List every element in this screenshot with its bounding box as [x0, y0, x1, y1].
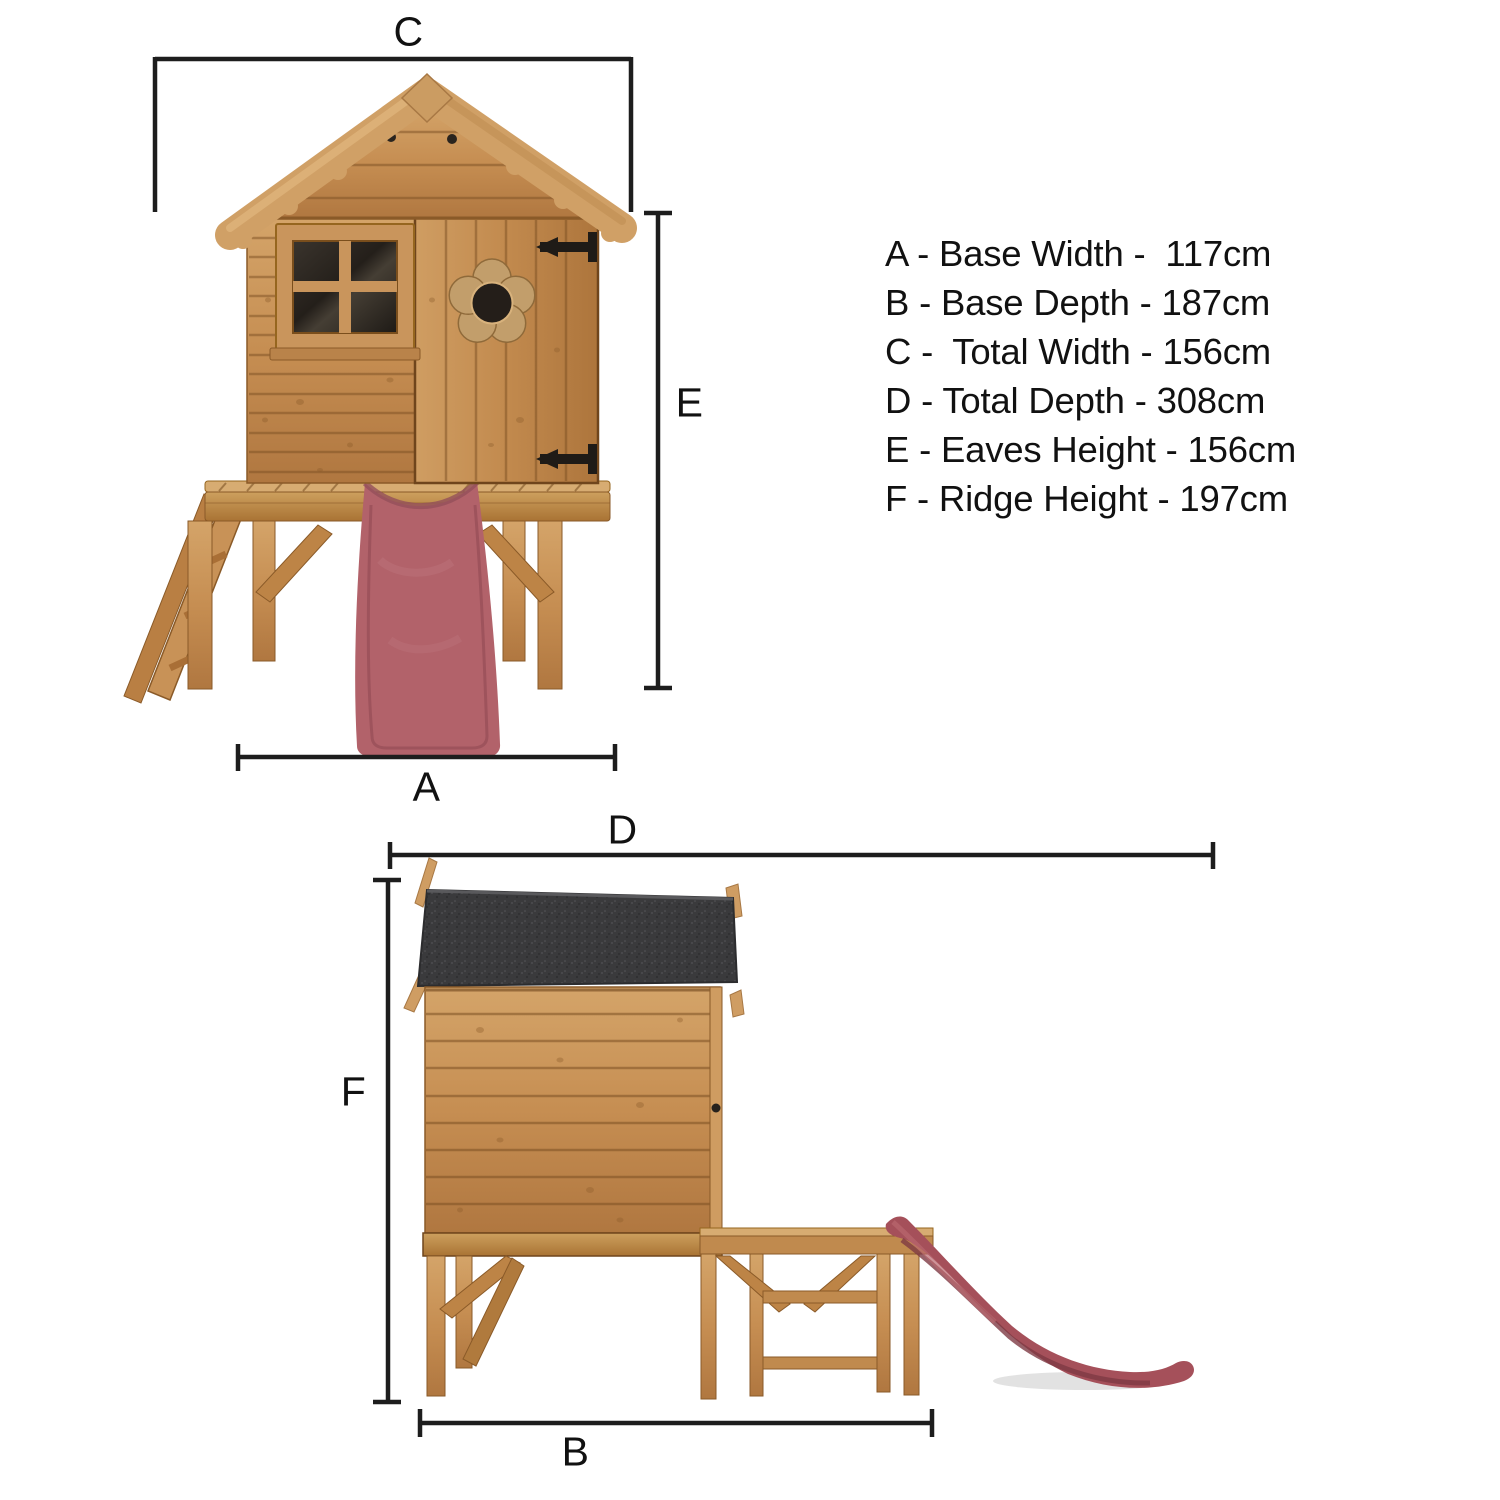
product-dimensions-diagram: C E A D F B A - Base Width - 117cm B - B… — [0, 0, 1500, 1500]
front-house — [230, 74, 622, 483]
front-window — [270, 224, 420, 360]
dim-line-e — [644, 213, 672, 688]
legend-item-eaves-height: E - Eaves Height - 156cm — [885, 425, 1296, 474]
side-platform-legs — [701, 1254, 919, 1399]
window-sill — [270, 348, 420, 360]
side-door-handle — [712, 1104, 721, 1113]
dim-line-d — [390, 842, 1213, 869]
dim-label-b: B — [562, 1429, 589, 1476]
side-ladder-icon — [763, 1291, 877, 1369]
dim-label-f: F — [341, 1069, 366, 1116]
side-rim-beam — [423, 1233, 722, 1256]
side-view-illustration — [373, 842, 1213, 1437]
legend-item-base-depth: B - Base Depth - 187cm — [885, 278, 1296, 327]
dim-label-a: A — [413, 764, 440, 811]
side-roof — [418, 890, 737, 986]
dim-label-c: C — [393, 9, 422, 56]
dim-label-e: E — [676, 380, 703, 427]
dim-line-b — [420, 1409, 932, 1437]
dim-line-f — [373, 880, 401, 1402]
front-slide — [355, 482, 500, 759]
side-wall — [425, 987, 722, 1233]
diagram-artwork — [0, 0, 1500, 1500]
dimensions-legend: A - Base Width - 117cm B - Base Depth - … — [885, 229, 1296, 523]
front-view-illustration — [0, 0, 672, 771]
gable-vent-hole-right — [447, 134, 457, 144]
dim-label-d: D — [607, 807, 636, 854]
legend-item-ridge-height: F - Ridge Height - 197cm — [885, 474, 1296, 523]
side-house-legs — [427, 1256, 524, 1396]
front-door — [415, 218, 598, 483]
legend-item-total-width: C - Total Width - 156cm — [885, 327, 1296, 376]
legend-item-base-width: A - Base Width - 117cm — [885, 229, 1296, 278]
legend-item-total-depth: D - Total Depth - 308cm — [885, 376, 1296, 425]
